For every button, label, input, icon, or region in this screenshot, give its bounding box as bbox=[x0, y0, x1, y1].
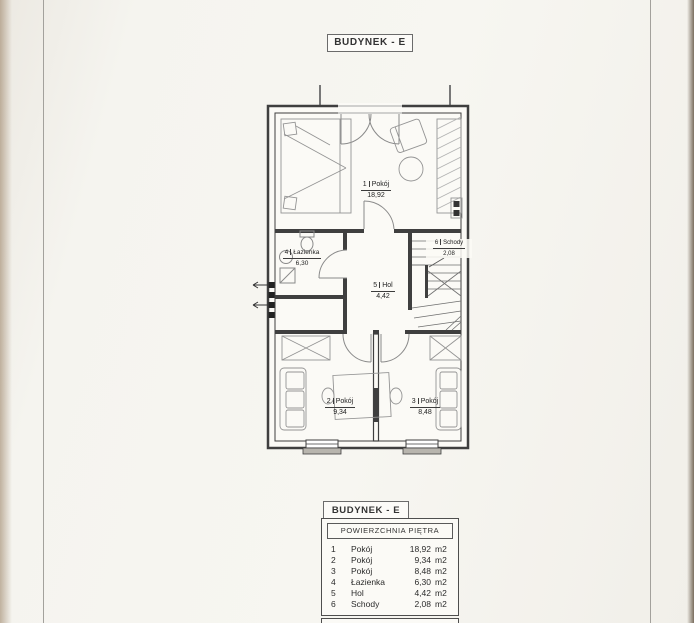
legend-row-area: 6,30 bbox=[399, 577, 431, 588]
room-name: Pokój bbox=[372, 181, 390, 188]
legend-row-area: 8,48 bbox=[399, 566, 431, 577]
room-label-stairs: 6Schody 2,08 bbox=[426, 239, 472, 258]
legend-row-name: Pokój bbox=[351, 555, 399, 566]
legend-row-area: 9,34 bbox=[399, 555, 431, 566]
legend-row-name: Łazienka bbox=[351, 577, 399, 588]
room-area: 6,30 bbox=[278, 259, 326, 268]
room-name: Łazienka bbox=[293, 249, 319, 256]
room-area: 18,92 bbox=[352, 191, 400, 200]
legend-row-area: 18,92 bbox=[399, 544, 431, 555]
room-number: 1 bbox=[363, 181, 367, 188]
legend-table: POWIERZCHNIA PIĘTRA 1 Pokój 18,92 m2 2 P… bbox=[321, 518, 459, 616]
legend-row-name: Hol bbox=[351, 588, 399, 599]
legend-row-area: 4,42 bbox=[399, 588, 431, 599]
room-name: Pokój bbox=[421, 398, 439, 405]
room-name: Hol bbox=[382, 282, 393, 289]
legend-header: POWIERZCHNIA PIĘTRA bbox=[327, 523, 453, 539]
room-area: 4,42 bbox=[363, 292, 403, 301]
legend-row-number: 3 bbox=[331, 566, 343, 577]
legend-row-unit: m2 bbox=[435, 555, 453, 566]
vent-arrow-icon bbox=[253, 302, 268, 308]
exterior-walls bbox=[268, 106, 468, 448]
scanned-floor-plan-page: BUDYNEK - E bbox=[0, 0, 694, 623]
legend-row-number: 6 bbox=[331, 599, 343, 610]
room-number: 5 bbox=[373, 282, 377, 289]
legend-row-number: 5 bbox=[331, 588, 343, 599]
room-area: 8,48 bbox=[401, 408, 449, 417]
legend-row: 5 Hol 4,42 m2 bbox=[331, 588, 453, 599]
legend-next-section-edge bbox=[321, 618, 459, 623]
room-label-room1: 1Pokój 18,92 bbox=[352, 181, 400, 200]
room-number: 2 bbox=[327, 398, 331, 405]
room-area: 2,08 bbox=[426, 249, 472, 258]
legend-row-number: 4 bbox=[331, 577, 343, 588]
legend-row-number: 1 bbox=[331, 544, 343, 555]
legend-row: 4 Łazienka 6,30 m2 bbox=[331, 577, 453, 588]
legend-rows: 1 Pokój 18,92 m2 2 Pokój 9,34 m2 3 Pokój… bbox=[331, 544, 453, 610]
room-number: 3 bbox=[412, 398, 416, 405]
room-label-room2: 2Pokój 9,34 bbox=[316, 398, 364, 417]
room-name: Pokój bbox=[336, 398, 354, 405]
room-number: 4 bbox=[285, 249, 289, 256]
legend-row-name: Pokój bbox=[351, 544, 399, 555]
legend-row-unit: m2 bbox=[435, 566, 453, 577]
room-label-bathroom: 4Łazienka 6,30 bbox=[278, 249, 326, 268]
room-area: 9,34 bbox=[316, 408, 364, 417]
legend-row-area: 2,08 bbox=[399, 599, 431, 610]
room-label-room3: 3Pokój 8,48 bbox=[401, 398, 449, 417]
vent-arrow-icon bbox=[253, 282, 268, 288]
legend-row: 6 Schody 2,08 m2 bbox=[331, 599, 453, 610]
legend-row-name: Schody bbox=[351, 599, 399, 610]
legend-row: 3 Pokój 8,48 m2 bbox=[331, 566, 453, 577]
central-wall bbox=[374, 334, 379, 441]
legend-row-name: Pokój bbox=[351, 566, 399, 577]
legend-row-unit: m2 bbox=[435, 599, 453, 610]
room-label-hall: 5Hol 4,42 bbox=[363, 282, 403, 301]
legend-row-unit: m2 bbox=[435, 588, 453, 599]
room-name: Schody bbox=[443, 240, 463, 246]
legend-row-unit: m2 bbox=[435, 544, 453, 555]
legend-row-number: 2 bbox=[331, 555, 343, 566]
legend-row: 1 Pokój 18,92 m2 bbox=[331, 544, 453, 555]
room-number: 6 bbox=[435, 240, 438, 246]
legend-row-unit: m2 bbox=[435, 577, 453, 588]
legend-row: 2 Pokój 9,34 m2 bbox=[331, 555, 453, 566]
